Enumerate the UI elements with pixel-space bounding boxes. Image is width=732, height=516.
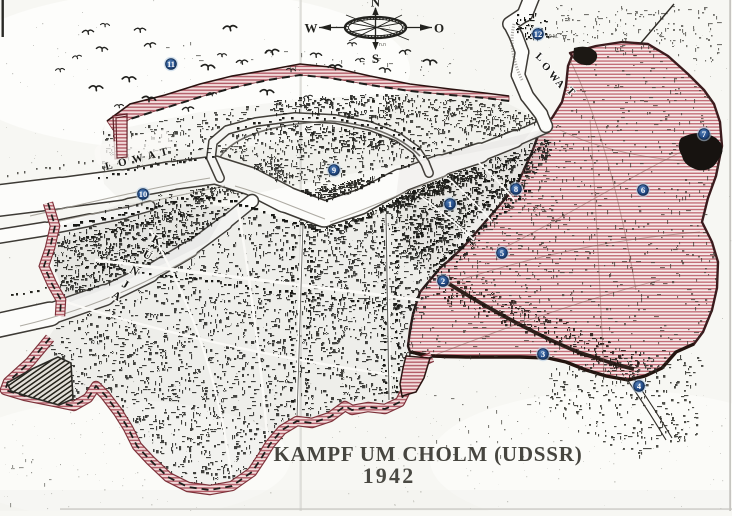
svg-text:8: 8 (514, 184, 518, 194)
svg-text:S: S (372, 51, 379, 66)
svg-text:W: W (305, 21, 318, 36)
svg-text:10: 10 (139, 189, 148, 199)
svg-text:9: 9 (332, 165, 336, 175)
svg-text:n.n: n.n (379, 42, 386, 48)
svg-text:12: 12 (534, 29, 543, 39)
svg-text:O: O (434, 21, 444, 36)
svg-text:11: 11 (167, 59, 175, 69)
svg-text:2: 2 (441, 276, 445, 286)
svg-text:KAMPF UM CHOLM (UDSSR): KAMPF UM CHOLM (UDSSR) (273, 442, 582, 466)
svg-text:1942: 1942 (363, 463, 416, 488)
svg-text:3: 3 (541, 349, 545, 359)
svg-text:5: 5 (500, 248, 504, 258)
svg-text:6: 6 (641, 185, 645, 195)
svg-text:N: N (371, 0, 381, 10)
svg-text:10 M.: 10 M. (546, 34, 559, 40)
svg-text:1: 1 (448, 199, 452, 209)
